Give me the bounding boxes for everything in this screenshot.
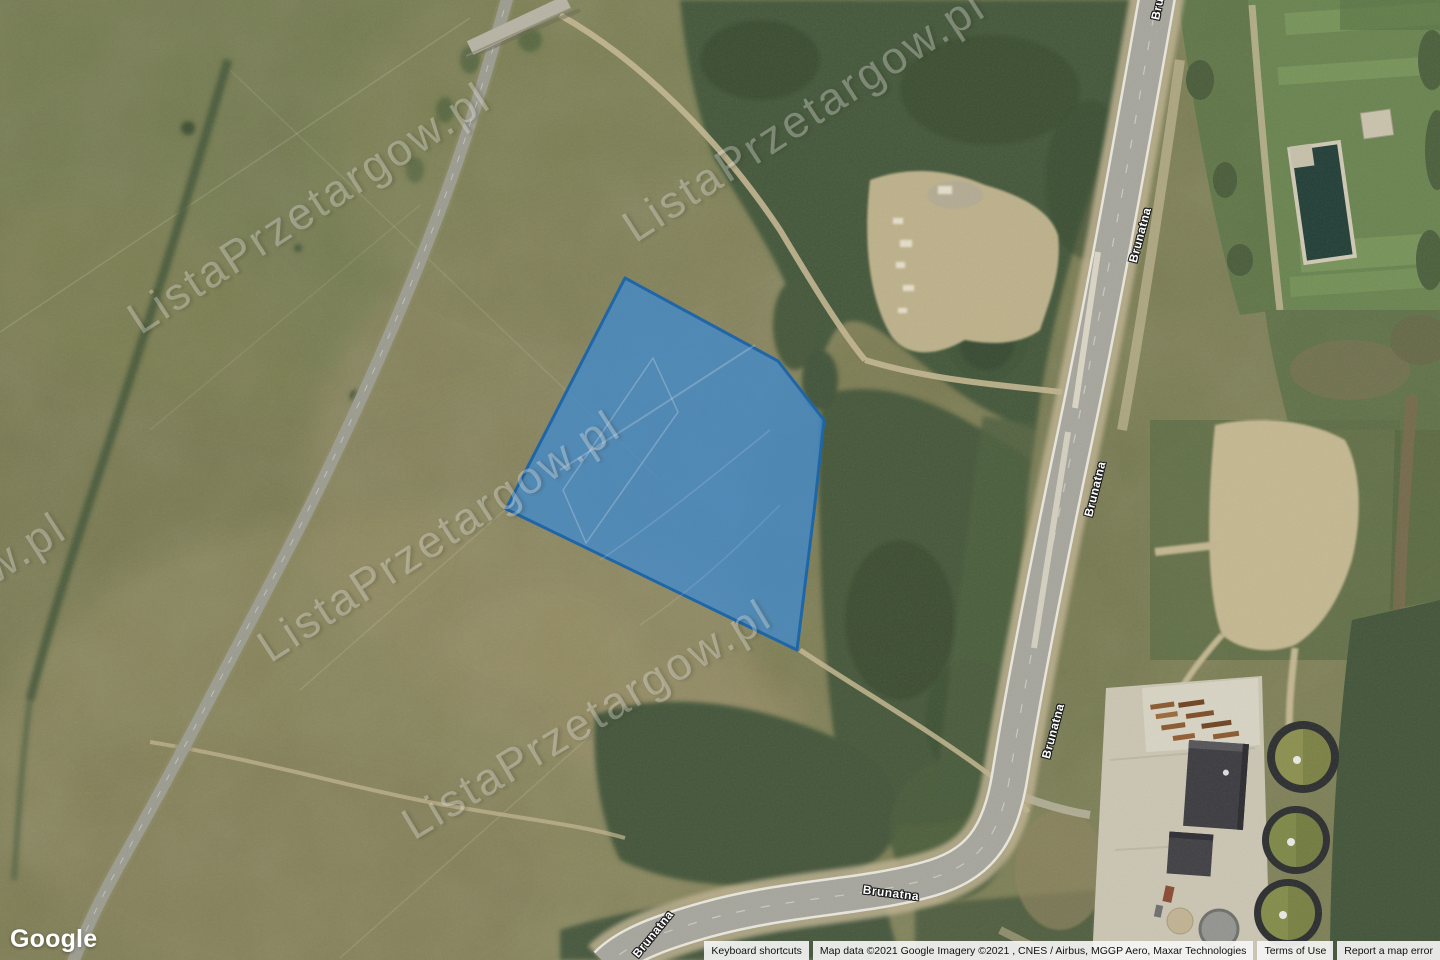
attribution-bar: Keyboard shortcuts Map data ©2021 Google…	[704, 941, 1440, 960]
terms-of-use-link[interactable]: Terms of Use	[1257, 941, 1333, 960]
map-data-attribution: Map data ©2021 Google Imagery ©2021 , CN…	[813, 941, 1254, 960]
satellite-map-canvas[interactable]: ListaPrzetargow.pl ListaPrzetargow.pl Li…	[0, 0, 1440, 960]
keyboard-shortcuts-button[interactable]: Keyboard shortcuts	[704, 941, 808, 960]
google-logo[interactable]: Google	[10, 925, 97, 954]
satellite-imagery	[0, 0, 1440, 960]
report-map-error-link[interactable]: Report a map error	[1337, 941, 1440, 960]
